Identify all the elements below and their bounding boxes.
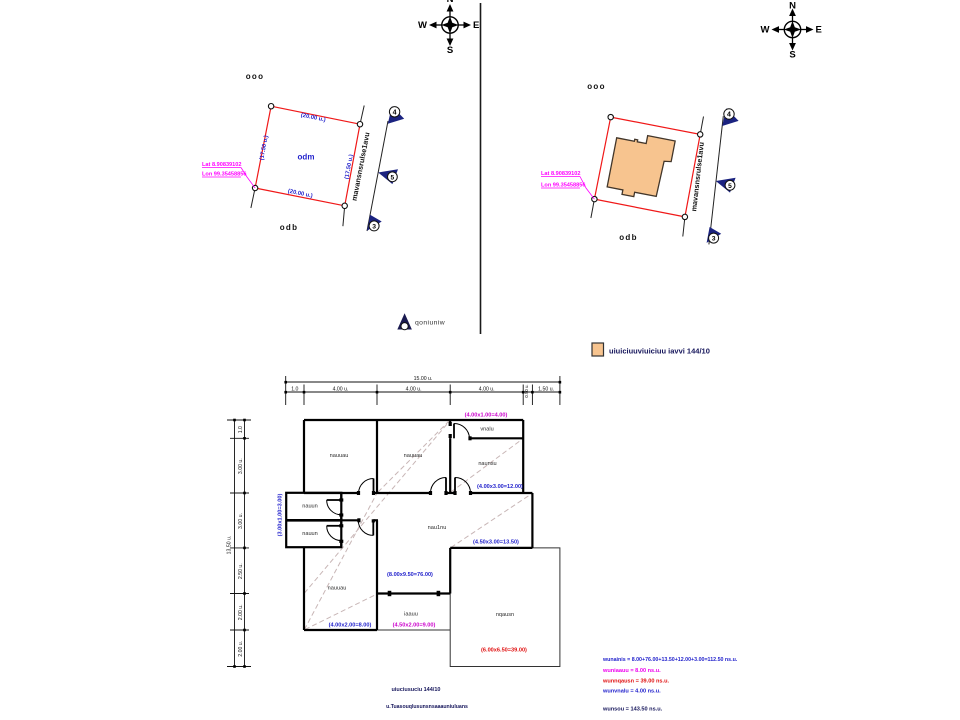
svg-text:4: 4 [393,109,397,116]
svg-text:2.50 u.: 2.50 u. [238,563,244,579]
svg-text:nauuau: nauuau [328,586,347,592]
svg-text:odb: odb [619,233,638,242]
svg-text:N: N [789,1,796,12]
svg-text:(4.00x3.00=12.00): (4.00x3.00=12.00) [477,484,523,490]
svg-text:1.0: 1.0 [238,426,244,433]
svg-text:nqausn: nqausn [496,612,514,618]
svg-text:E: E [816,25,822,36]
svg-text:(4.00x1.00=4.00): (4.00x1.00=4.00) [465,413,508,419]
svg-text:nauuau: nauuau [404,453,423,459]
svg-text:2.00 u.: 2.00 u. [238,604,244,620]
svg-text:wunvnalu = 4.00 ns.u.: wunvnalu = 4.00 ns.u. [602,689,661,695]
svg-text:ooo: ooo [587,82,606,91]
svg-text:(4.50x3.00=13.50): (4.50x3.00=13.50) [473,540,519,546]
svg-text:W: W [418,20,427,31]
svg-text:S: S [789,50,795,61]
svg-text:W: W [761,25,770,36]
svg-text:odb: odb [280,223,299,232]
svg-text:13.50 u.: 13.50 u. [227,536,233,555]
svg-text:3: 3 [372,224,376,231]
svg-text:iaauu: iaauu [404,612,418,618]
svg-text:5: 5 [391,174,395,181]
svg-text:nauuau: nauuau [330,453,349,459]
svg-text:ooo: ooo [246,72,265,81]
svg-text:1.50 u.: 1.50 u. [538,387,554,393]
svg-text:uiuciusuciu 144/10: uiuciusuciu 144/10 [392,687,441,693]
svg-text:nauun: nauun [302,531,318,537]
svg-text:(6.00x6.50=39.00): (6.00x6.50=39.00) [481,648,527,654]
svg-text:qoniuniw: qoniuniw [415,320,445,327]
svg-text:4.00 u.: 4.00 u. [479,387,495,393]
svg-text:nau1nu: nau1nu [428,525,447,531]
svg-text:4: 4 [727,112,731,119]
svg-text:(4.00x2.00=8.00): (4.00x2.00=8.00) [329,623,372,629]
svg-text:(4.50x2.00=9.00): (4.50x2.00=9.00) [393,623,436,629]
svg-text:5: 5 [728,183,732,190]
svg-text:S: S [447,45,453,56]
svg-text:naunsu: naunsu [478,461,496,467]
svg-text:(8.00x9.50=76.00): (8.00x9.50=76.00) [387,572,433,578]
svg-text:3.00 u.: 3.00 u. [238,458,244,474]
svg-text:4.00 u.: 4.00 u. [406,387,422,393]
svg-text:(3.00x1.00=3.00): (3.00x1.00=3.00) [278,493,284,536]
svg-text:E: E [473,20,479,31]
svg-text:2.00 u.: 2.00 u. [238,641,244,657]
svg-text:15.00 u.: 15.00 u. [414,376,433,382]
svg-text:N: N [447,0,454,5]
svg-text:wuniaauu = 8.00 ns.u.: wuniaauu = 8.00 ns.u. [602,668,661,674]
svg-text:1.0: 1.0 [291,387,298,393]
svg-text:u.Tuasouqlusunsnsaaauniuluans: u.Tuasouqlusunsnsaaauniuluans [386,704,468,710]
svg-text:wunainis = 8.00+76.00+13.50+12: wunainis = 8.00+76.00+13.50+12.00+3.00=1… [602,657,738,663]
svg-text:3: 3 [712,236,716,243]
svg-text:odm: odm [298,153,315,162]
svg-text:0.50 u.: 0.50 u. [524,384,529,397]
svg-text:4.00 u.: 4.00 u. [333,387,349,393]
svg-text:3.00 u.: 3.00 u. [238,513,244,529]
svg-text:wunnqausn = 39.00 ns.u.: wunnqausn = 39.00 ns.u. [602,679,670,685]
svg-text:uiuiciuuviuiciuu iavvi 144/10: uiuiciuuviuiciuu iavvi 144/10 [609,347,710,356]
svg-text:vnalu: vnalu [480,427,493,433]
svg-text:wunsou = 143.50 ns.u.: wunsou = 143.50 ns.u. [602,707,663,713]
svg-text:nauun: nauun [302,504,318,510]
